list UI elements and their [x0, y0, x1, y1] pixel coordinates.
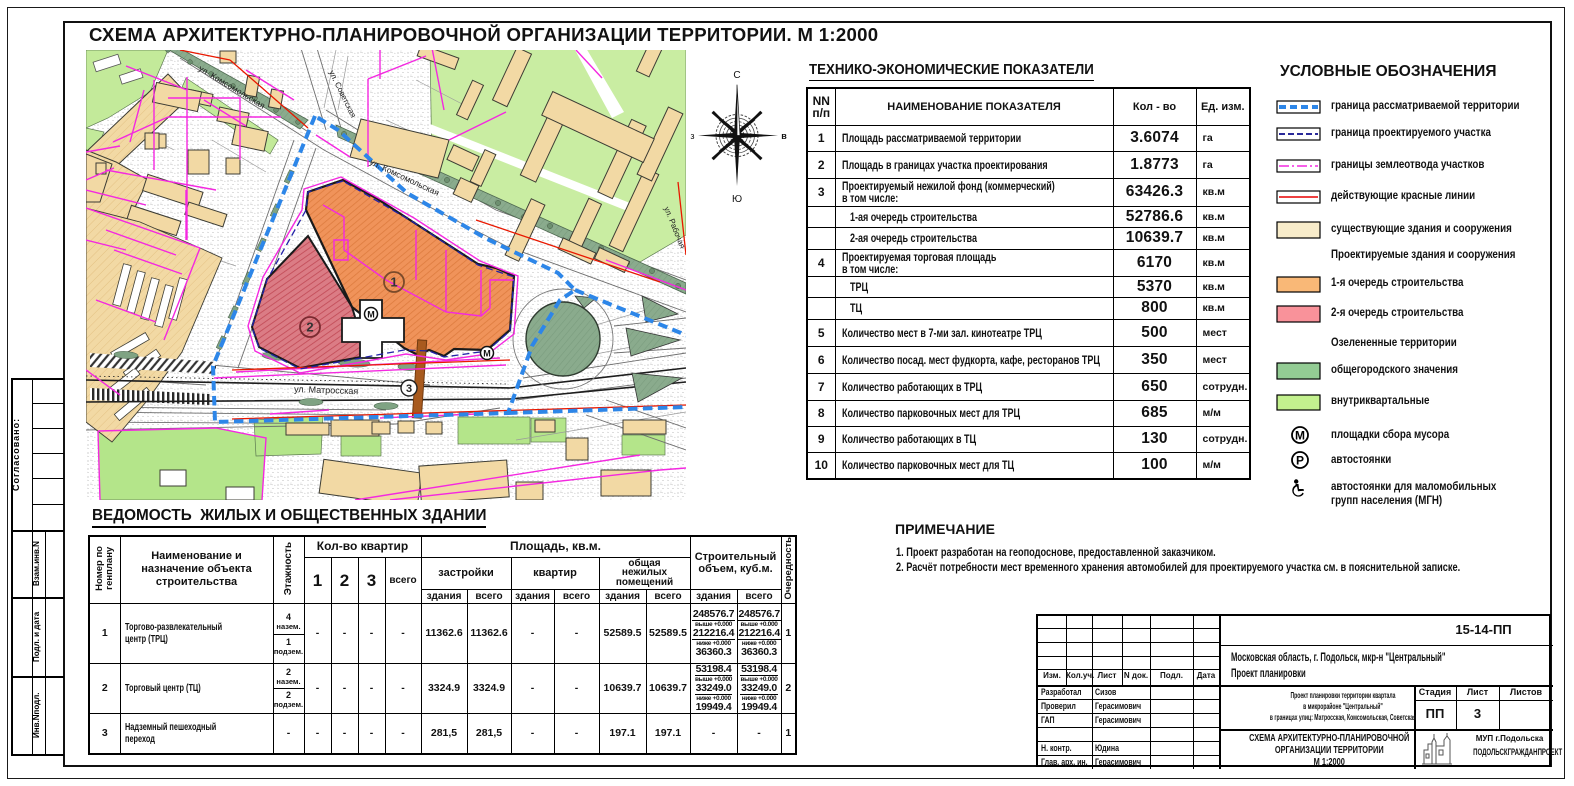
svg-text:Ю: Ю	[732, 194, 742, 205]
svg-text:в: в	[781, 131, 787, 141]
svg-text:М: М	[483, 349, 491, 359]
svg-text:2: 2	[306, 320, 313, 335]
svg-text:1: 1	[390, 275, 397, 290]
svg-text:3: 3	[406, 383, 412, 395]
svg-text:з: з	[690, 131, 694, 141]
svg-text:С: С	[733, 70, 740, 81]
svg-text:М: М	[1295, 429, 1305, 443]
svg-text:М: М	[367, 310, 375, 320]
svg-text:Р: Р	[1296, 454, 1304, 468]
